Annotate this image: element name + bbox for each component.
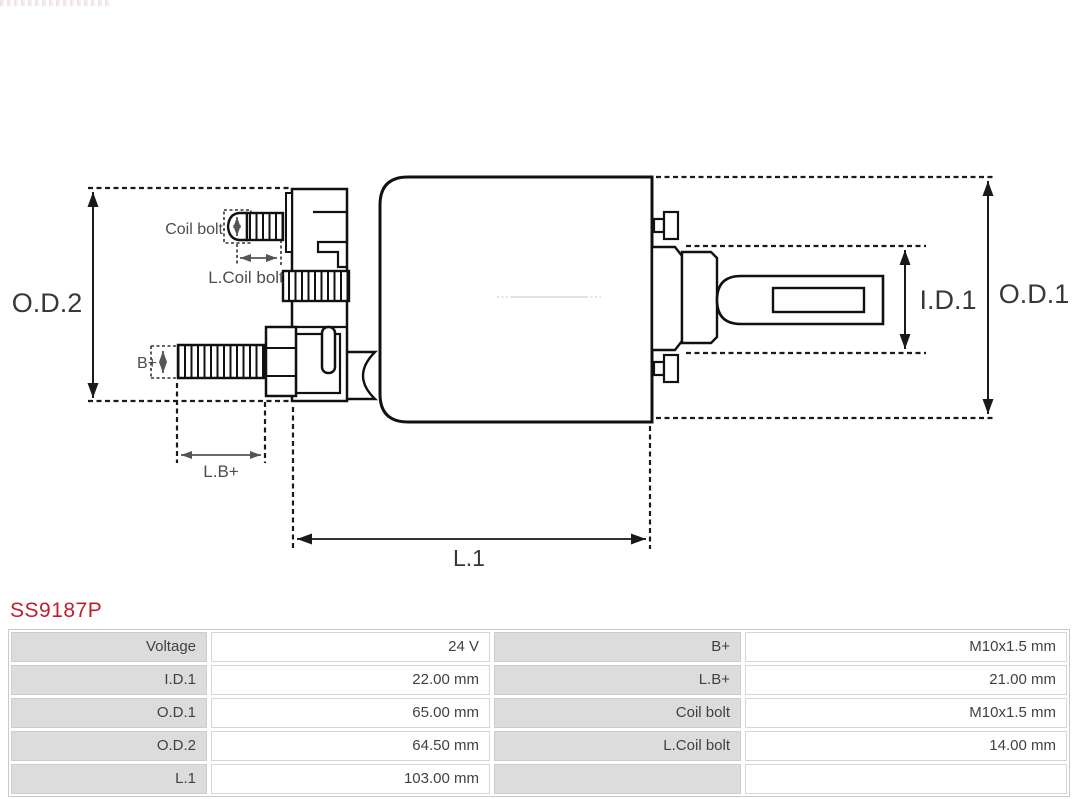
spec-value-cell: 65.00 mm (211, 698, 490, 728)
dim-label-id1: I.D.1 (919, 285, 976, 315)
solenoid-body (178, 177, 883, 422)
spec-value-cell (745, 764, 1067, 794)
spec-label-cell: O.D.2 (11, 731, 207, 761)
spec-label-cell: L.Coil bolt (494, 731, 741, 761)
spec-value-cell: 103.00 mm (211, 764, 490, 794)
spec-label-cell: O.D.1 (11, 698, 207, 728)
spec-label-cell: L.B+ (494, 665, 741, 695)
dim-label-l-b-plus: L.B+ (203, 462, 239, 481)
spec-label-cell: B+ (494, 632, 741, 662)
spec-label-cell: I.D.1 (11, 665, 207, 695)
dim-label-od1: O.D.1 (999, 279, 1070, 309)
spec-value-cell: 14.00 mm (745, 731, 1067, 761)
dim-label-b-plus: B+ (137, 355, 157, 372)
dim-label-od2: O.D.2 (12, 288, 83, 318)
spec-label-cell: Coil bolt (494, 698, 741, 728)
dim-label-coil-bolt: Coil bolt (165, 221, 223, 238)
product-dimensions-page: O.D.2 O.D.1 I.D.1 L.1 Coil bolt L.Coil b… (0, 0, 1080, 799)
spec-value-cell: M10x1.5 mm (745, 632, 1067, 662)
dim-label-l-coil-bolt: L.Coil bolt (208, 268, 284, 287)
solenoid-dimension-drawing: O.D.2 O.D.1 I.D.1 L.1 Coil bolt L.Coil b… (0, 0, 1080, 596)
spec-value-cell: 22.00 mm (211, 665, 490, 695)
spec-table: Voltage 24 V B+ M10x1.5 mm I.D.1 22.00 m… (8, 629, 1070, 797)
spec-value-cell: M10x1.5 mm (745, 698, 1067, 728)
spec-value-cell: 64.50 mm (211, 731, 490, 761)
spec-value-cell: 24 V (211, 632, 490, 662)
spec-label-cell (494, 764, 741, 794)
spec-label-cell: L.1 (11, 764, 207, 794)
spec-value-cell: 21.00 mm (745, 665, 1067, 695)
dim-label-l1: L.1 (453, 545, 485, 571)
part-number: SS9187P (10, 599, 102, 623)
spec-label-cell: Voltage (11, 632, 207, 662)
